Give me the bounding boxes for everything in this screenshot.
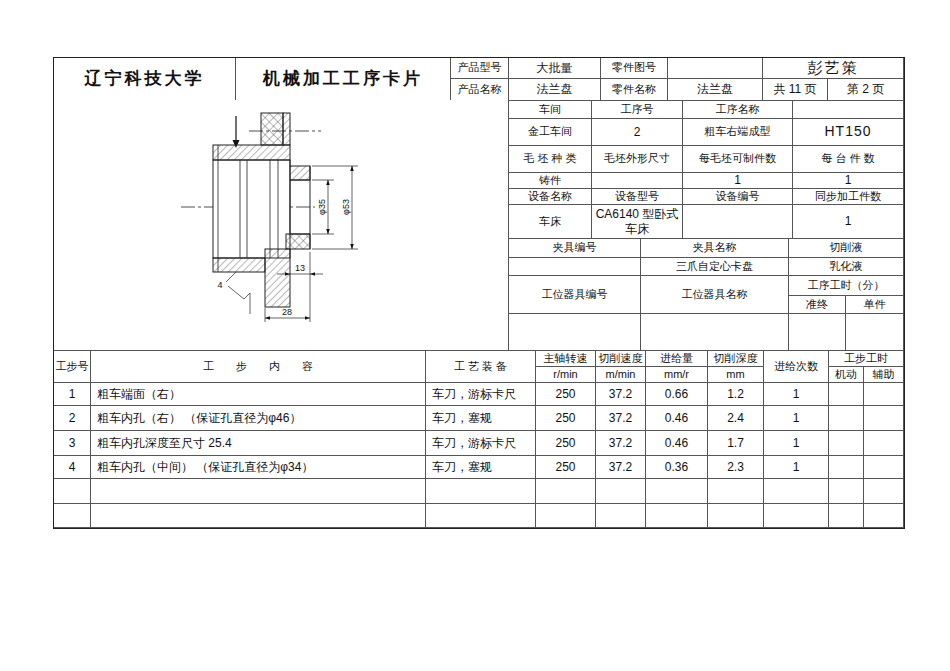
part-name-label: 零件名称 [601,79,668,101]
col-equipment: 工 艺 装 备 [426,351,536,383]
col-speed: 切削速度 [596,351,646,367]
step-speed: 37.2 [596,406,646,431]
col-spindle-unit: r/min [536,367,596,383]
col-depth: 切削深度 [708,351,764,367]
step-passes: 1 [764,456,829,479]
fixture-info-table: 夹具编号 夹具名称 切削液 三爪自定心卡盘 乳化液 工位器具编号 工位器具名称 … [508,238,904,351]
workshop-value: 金工车间 [509,119,592,146]
process-time-label: 工序工时（分） [789,276,904,296]
step-row-2: 2 粗车内孔（右） （保证孔直径为φ46） 车刀，塞规 250 37.2 0.4… [54,406,904,431]
parts-per-machine-value: 1 [793,173,904,189]
col-feed: 进给量 [646,351,708,367]
flange-disc-bottom [265,249,290,307]
step-time-aux [864,456,904,479]
boss-ring-top [290,166,310,180]
step-time-machine [829,456,864,479]
prep-time-label: 准终 [789,296,846,314]
step-speed: 37.2 [596,383,646,406]
step-time-aux [864,383,904,406]
unit-time-label: 单件 [846,296,904,314]
blank-size-value [592,173,683,189]
hub-wall-bottom [213,258,265,272]
hub-wall-top [213,145,290,160]
flange-rim-top [283,113,290,145]
step-equipment: 车刀，游标卡尺 [426,431,536,456]
fixture-no-value [509,258,641,276]
dim-phi35-label: φ35 [317,199,327,215]
process-info-table: 车间 工序号 工序名称 金工车间 2 粗车右端成型 HT150 毛 坯 种 类 … [508,100,904,239]
process-no-label: 工序号 [592,101,683,119]
step-content [91,479,426,504]
dim-13-label: 13 [295,263,305,273]
step-time-machine [829,431,864,456]
part-drawing-no-value [668,58,763,79]
col-speed-unit: m/min [596,367,646,383]
steps-table: 工步号 工 步 内 容 工 艺 装 备 主轴转速 切削速度 进给量 切削深度 进… [53,350,904,528]
step-content: 粗车内孔深度至尺寸 25.4 [91,431,426,456]
step-no: 3 [54,431,91,456]
dim-phi53-label: φ53 [341,199,351,215]
workshop-label: 车间 [509,101,592,119]
flange-setup-drawing: φ35 φ53 13 [53,100,508,350]
hub-bore-section [213,160,290,258]
step-no: 2 [54,406,91,431]
university-name: 辽宁科技大学 [54,58,236,101]
chamfer-leader [226,272,250,314]
tooling-no-label: 工位器具编号 [509,276,641,314]
col-content: 工 步 内 容 [91,351,426,383]
unit-time-value [846,314,904,351]
coolant-value: 乳化液 [789,258,904,276]
step-spindle: 250 [536,431,596,456]
step-spindle: 250 [536,383,596,406]
equipment-no-value [683,205,793,239]
step-time-machine [829,383,864,406]
step-row-6 [54,504,904,528]
equipment-name-value: 车床 [509,205,592,239]
clamp-arrow [233,116,240,148]
author-name: 彭艺策 [763,58,904,79]
step-depth: 1.7 [708,431,764,456]
step-feed: 0.46 [646,431,708,456]
step-feed: 0.46 [646,406,708,431]
equipment-model-value: CA6140 型卧式车床 [592,205,683,239]
step-equipment [426,479,536,504]
step-depth: 2.4 [708,406,764,431]
step-feed: 0.36 [646,456,708,479]
col-feed-unit: mm/r [646,367,708,383]
step-row-5 [54,479,904,504]
product-name-label: 产品名称 [451,79,509,101]
sync-parts-value: 1 [793,205,904,239]
step-depth: 1.2 [708,383,764,406]
process-name-value: 粗车右端成型 [683,119,793,146]
tooling-name-label: 工位器具名称 [641,276,789,314]
step-time-aux [864,406,904,431]
step-row-4: 4 粗车内孔（中间） （保证孔直径为φ34） 车刀，塞规 250 37.2 0.… [54,456,904,479]
blank-size-label: 毛坯外形尺寸 [592,146,683,173]
step-content: 粗车端面（右） [91,383,426,406]
col-time: 工步工时 [829,351,904,367]
dim-28-label: 28 [282,307,292,317]
parts-per-blank-value: 1 [683,173,793,189]
step-row-3: 3 粗车内孔深度至尺寸 25.4 车刀，游标卡尺 250 37.2 0.46 1… [54,431,904,456]
fixture-name-label: 夹具名称 [641,239,789,258]
step-content: 粗车内孔（中间） （保证孔直径为φ34） [91,456,426,479]
fixture-name-value: 三爪自定心卡盘 [641,258,789,276]
step-equipment: 车刀，塞规 [426,406,536,431]
step-no: 4 [54,456,91,479]
step-spindle: 250 [536,456,596,479]
step-speed: 37.2 [596,431,646,456]
step-passes: 1 [764,406,829,431]
process-name-label: 工序名称 [683,101,793,119]
process-card-sheet: 辽宁科技大学 机械加工工序卡片 产品型号 大批量 零件图号 彭艺策 产品名称 法… [53,57,903,527]
step-time-aux [864,431,904,456]
step-content: 粗车内孔（右） （保证孔直径为φ46） [91,406,426,431]
process-no-value: 2 [592,119,683,146]
step-spindle: 250 [536,406,596,431]
chamfer-label: 4 [217,280,222,290]
page-current: 第 2 页 [828,79,904,101]
process-card-page: 辽宁科技大学 机械加工工序卡片 产品型号 大批量 零件图号 彭艺策 产品名称 法… [0,0,950,671]
card-title: 机械加工工序卡片 [236,58,451,101]
equipment-no-label: 设备编号 [683,189,793,205]
part-drawing-cell: φ35 φ53 13 [53,100,509,350]
material-value: HT150 [793,119,904,146]
blank-type-label: 毛 坯 种 类 [509,146,592,173]
chuck-jaw-top [261,113,283,145]
col-spindle: 主轴转速 [536,351,596,367]
step-equipment: 车刀，塞规 [426,456,536,479]
fixture-no-label: 夹具编号 [509,239,641,258]
chuck-jaw-bottom [286,234,310,249]
coolant-label: 切削液 [789,239,904,258]
prep-time-value [789,314,846,351]
tooling-no-value [509,314,641,351]
col-time-aux: 辅助 [864,367,904,383]
step-feed: 0.66 [646,383,708,406]
step-passes: 1 [764,431,829,456]
step-no [54,479,91,504]
col-time-machine: 机动 [829,367,864,383]
header-table: 辽宁科技大学 机械加工工序卡片 产品型号 大批量 零件图号 彭艺策 产品名称 法… [53,57,904,101]
parts-per-blank-label: 每毛坯可制件数 [683,146,793,173]
step-equipment: 车刀，游标卡尺 [426,383,536,406]
equipment-model-label: 设备型号 [592,189,683,205]
product-model-label: 产品型号 [451,58,509,79]
pages-total: 共 11 页 [763,79,828,101]
parts-per-machine-label: 每 台 件 数 [793,146,904,173]
col-step-no: 工步号 [54,351,91,383]
tooling-name-value [641,314,789,351]
sync-parts-label: 同步加工件数 [793,189,904,205]
product-model-value: 大批量 [509,58,601,79]
step-time-machine [829,406,864,431]
col-depth-unit: mm [708,367,764,383]
product-name-value: 法兰盘 [509,79,601,101]
step-speed: 37.2 [596,456,646,479]
col-passes: 进给次数 [764,351,829,383]
equipment-name-label: 设备名称 [509,189,592,205]
step-row-1: 1 粗车端面（右） 车刀，游标卡尺 250 37.2 0.66 1.2 1 [54,383,904,406]
part-drawing-no-label: 零件图号 [601,58,668,79]
blank-type-value: 铸件 [509,173,592,189]
step-depth: 2.3 [708,456,764,479]
step-no: 1 [54,383,91,406]
part-name-value: 法兰盘 [668,79,763,101]
material-header-cell [793,101,904,119]
step-passes: 1 [764,383,829,406]
